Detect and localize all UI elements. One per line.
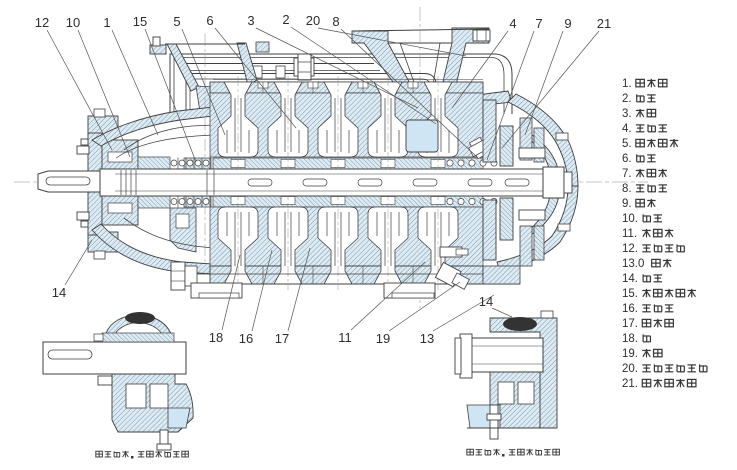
svg-text:21.: 21. [622,378,638,390]
svg-text:16.: 16. [622,303,638,315]
svg-text:20.: 20. [622,363,638,375]
svg-text:20: 20 [306,13,320,28]
svg-text:19.: 19. [622,348,638,360]
svg-text:17: 17 [275,331,289,346]
svg-text:4: 4 [509,16,516,31]
svg-text:10: 10 [66,15,80,30]
svg-text:1.: 1. [622,78,632,90]
svg-text:18.: 18. [622,333,638,345]
svg-text:9: 9 [564,16,571,31]
svg-text:1: 1 [103,15,110,30]
svg-text:16: 16 [239,331,253,346]
svg-text:13.0: 13.0 [622,258,644,270]
svg-text:6: 6 [206,13,213,28]
svg-text:8.: 8. [622,183,632,195]
svg-text:7.: 7. [622,168,632,180]
svg-text:21: 21 [597,16,611,31]
svg-text:5: 5 [173,14,180,29]
svg-text:9.: 9. [622,198,632,210]
svg-text:5.: 5. [622,138,632,150]
svg-text:3.: 3. [622,108,632,120]
svg-text:7: 7 [535,16,542,31]
svg-text:14: 14 [479,294,493,309]
svg-text:15: 15 [133,14,147,29]
svg-text:12: 12 [35,15,49,30]
svg-text:11.: 11. [622,228,637,240]
svg-text:14: 14 [52,285,66,300]
svg-text:8: 8 [332,14,339,29]
svg-text:10.: 10. [622,213,638,225]
svg-text:18: 18 [209,330,223,345]
svg-text:19: 19 [376,331,390,346]
svg-text:12.: 12. [622,243,638,255]
svg-text:6.: 6. [622,153,632,165]
svg-text:2: 2 [282,12,289,27]
svg-text:3: 3 [247,13,254,28]
svg-text:17.: 17. [622,318,638,330]
svg-text:15.: 15. [622,288,638,300]
svg-text:11: 11 [338,330,352,345]
svg-text:14.: 14. [622,273,638,285]
svg-text:13: 13 [420,331,434,346]
svg-text:4.: 4. [622,123,632,135]
svg-text:2.: 2. [622,93,632,105]
